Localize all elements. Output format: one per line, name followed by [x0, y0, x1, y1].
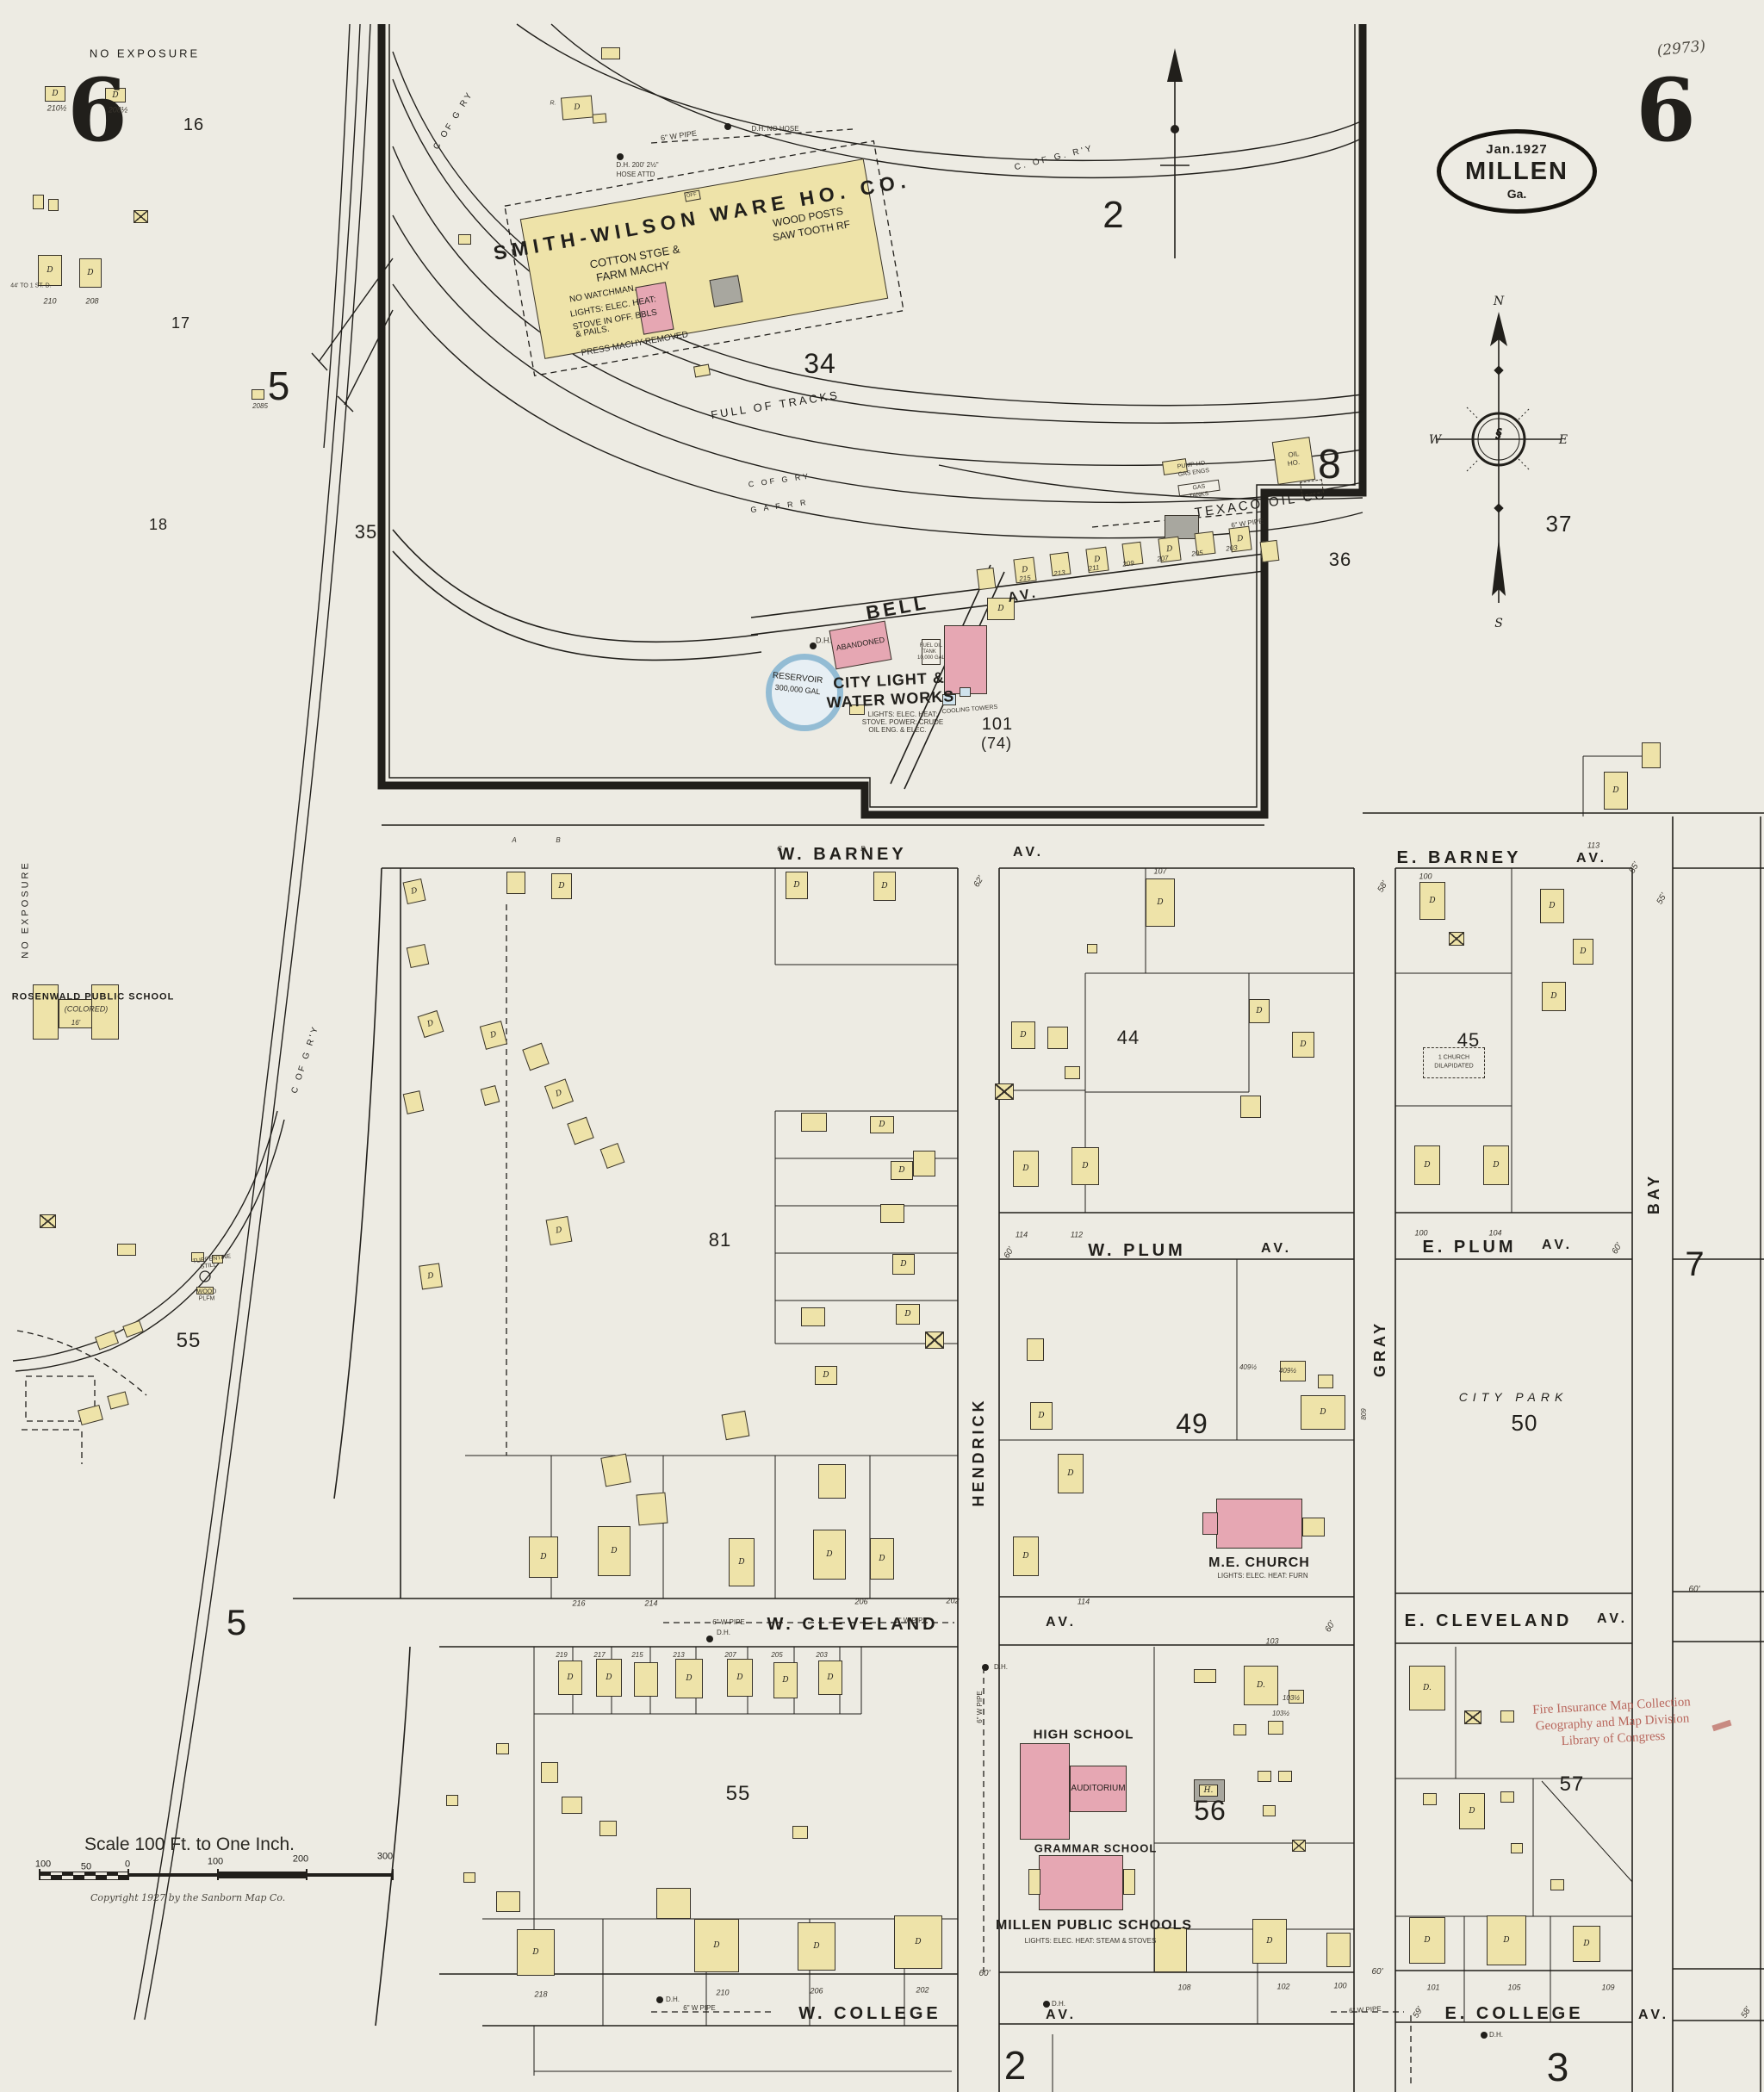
date-stamp: Jan.1927 MILLEN Ga. — [1437, 129, 1597, 214]
building-footprint: D — [1459, 1793, 1485, 1829]
building-footprint — [599, 1821, 617, 1836]
building-use-label: D — [686, 1674, 692, 1683]
building-use-label: D — [1266, 1937, 1272, 1946]
building-footprint — [1258, 1771, 1271, 1782]
map-label: 100 — [1333, 1983, 1346, 1990]
building-footprint — [1123, 1869, 1135, 1895]
map-label: 10,000 GAL — [917, 655, 945, 661]
building-footprint: D — [517, 1929, 555, 1976]
building-footprint: D — [873, 872, 896, 901]
building-footprint — [1216, 1499, 1302, 1549]
map-label: 210½ — [47, 105, 67, 113]
building-footprint: D — [1414, 1145, 1440, 1185]
building-footprint: D — [727, 1659, 753, 1697]
building-footprint: D — [596, 1659, 622, 1697]
map-label: 45 — [1457, 1031, 1480, 1050]
map-label: D.H. 200' 2½" — [616, 162, 658, 169]
building-footprint — [134, 210, 148, 223]
map-label: 6" W PIPE — [895, 1617, 928, 1624]
building-footprint: D — [1252, 1919, 1287, 1964]
scale-segment — [127, 1873, 217, 1877]
building-footprint — [880, 1204, 904, 1223]
map-label: HOSE ATTD — [617, 171, 655, 178]
map-label: 101 — [982, 716, 1013, 733]
building-footprint — [1233, 1724, 1246, 1735]
building-footprint — [1500, 1791, 1514, 1803]
map-label: AV. — [1013, 846, 1044, 860]
building-footprint — [1028, 1869, 1040, 1895]
map-label: 16 — [183, 116, 204, 133]
building-use-label: D — [1550, 992, 1556, 1001]
building-footprint — [1263, 1805, 1276, 1816]
map-label: 105 — [1507, 1984, 1520, 1992]
scale-segment — [306, 1873, 394, 1877]
map-label: 6" W PIPE — [977, 1691, 984, 1723]
map-label: 209 — [1122, 560, 1134, 568]
building-footprint: D — [892, 1254, 915, 1275]
map-label: E. COLLEGE — [1444, 2005, 1583, 2022]
map-label: 207 — [724, 1652, 736, 1659]
building-footprint: D — [1483, 1145, 1509, 1185]
building-use-label: H. — [1204, 1786, 1214, 1795]
building-footprint — [1027, 1338, 1044, 1361]
map-label: STOVE. POWER: CRUDE — [862, 719, 944, 726]
building-use-label: D — [426, 1019, 435, 1029]
building-use-label: D — [813, 1942, 819, 1951]
building-footprint: D — [1013, 1151, 1039, 1187]
compass-north-label: N — [1493, 295, 1505, 308]
building-footprint: D — [786, 872, 808, 899]
building-footprint: D — [891, 1161, 913, 1180]
map-label: R. — [550, 101, 556, 107]
building-use-label: D — [1022, 1552, 1028, 1561]
map-label: 18 — [149, 517, 168, 532]
building-footprint — [944, 625, 987, 694]
stamp-state: Ga. — [1507, 187, 1527, 201]
map-label: 218 — [534, 1991, 547, 1999]
building-footprint — [1642, 742, 1661, 768]
building-footprint — [496, 1743, 509, 1754]
building-footprint — [1423, 1793, 1437, 1805]
map-label: WOOD — [197, 1289, 217, 1295]
building-footprint: D — [1030, 1402, 1053, 1430]
building-footprint: D — [546, 1216, 573, 1245]
building-footprint: D — [1540, 889, 1564, 923]
map-label: 60' — [1371, 1968, 1382, 1977]
building-footprint — [40, 1214, 56, 1228]
scale-tick — [39, 1869, 40, 1880]
map-label: HIGH SCHOOL — [1034, 1729, 1134, 1741]
building-footprint: D — [1071, 1147, 1099, 1185]
building-use-label: D — [558, 882, 564, 891]
building-footprint: D — [1419, 882, 1445, 920]
map-label: TANK — [922, 649, 936, 655]
map-label: 217 — [593, 1652, 605, 1659]
building-footprint: D — [551, 873, 572, 899]
building-use-label: D — [879, 1120, 885, 1129]
map-label: 2085 — [252, 403, 268, 410]
building-footprint — [1292, 1840, 1306, 1852]
building-footprint — [801, 1307, 825, 1326]
building-footprint: D — [813, 1530, 846, 1580]
building-use-label: D — [1612, 786, 1618, 795]
building-footprint: D. — [1244, 1666, 1278, 1705]
building-footprint: D — [1573, 1926, 1600, 1962]
map-label: ROSENWALD PUBLIC SCHOOL — [12, 993, 175, 1003]
building-use-label: D — [793, 881, 799, 890]
building-footprint — [913, 1151, 935, 1176]
map-label: GRAMMAR SCHOOL — [1034, 1843, 1158, 1854]
map-label: A — [512, 837, 516, 844]
map-label: 114 — [1078, 1598, 1090, 1606]
map-label: M.E. CHURCH — [1208, 1556, 1310, 1570]
map-label: 102 — [1276, 1983, 1289, 1991]
building-use-label: D — [900, 1260, 906, 1269]
building-use-label: D — [823, 1371, 829, 1380]
building-use-label: D — [1082, 1162, 1088, 1170]
map-label: 210 — [43, 298, 56, 306]
map-label: W. BARNEY — [778, 846, 906, 863]
copyright-line: Copyright 1927 by the Sanborn Map Co. — [90, 1892, 285, 1903]
building-footprint — [792, 1826, 808, 1839]
map-label: 44 — [1117, 1028, 1140, 1047]
building-footprint: D. — [1409, 1666, 1445, 1710]
map-label: 103½ — [1272, 1710, 1289, 1717]
map-label: E. PLUM — [1422, 1238, 1516, 1256]
building-use-label: D — [47, 266, 53, 275]
building-footprint — [801, 1113, 827, 1132]
building-use-label: D — [1237, 535, 1244, 544]
building-footprint: D — [870, 1116, 894, 1133]
map-label: 3 — [1547, 2047, 1570, 2087]
building-use-label: D — [52, 90, 58, 98]
building-use-label: D — [713, 1941, 719, 1950]
map-label: LIGHTS: ELEC. HEAT: FURN — [1217, 1573, 1307, 1580]
map-label: AV. — [1576, 852, 1607, 866]
map-label: 200 — [293, 1855, 308, 1865]
building-use-label: D — [611, 1547, 617, 1555]
building-footprint — [1039, 1855, 1123, 1910]
building-use-label: D — [427, 1272, 435, 1282]
map-label: 5 — [227, 1605, 247, 1641]
building-footprint: D — [694, 1919, 739, 1972]
scale-bar — [39, 1869, 394, 1881]
compass-south-label: S — [1494, 617, 1503, 629]
map-label: D.H. — [717, 1630, 730, 1636]
building-footprint — [634, 1662, 658, 1697]
map-label: D — [860, 846, 866, 853]
building-footprint — [1260, 540, 1280, 562]
map-label: 2 — [1004, 2045, 1028, 2085]
map-label: 55 — [177, 1331, 202, 1351]
building-footprint — [600, 1454, 630, 1487]
building-footprint: D — [1146, 878, 1175, 927]
building-footprint — [33, 195, 44, 209]
building-use-label: D — [1300, 1040, 1306, 1049]
building-use-label: D. — [1257, 1681, 1265, 1690]
building-footprint — [1550, 1879, 1564, 1890]
building-use-label: D — [1469, 1807, 1475, 1816]
building-footprint — [1449, 932, 1464, 946]
map-label: 100 — [35, 1860, 51, 1870]
map-label: 100 — [208, 1858, 223, 1867]
building-footprint — [636, 1493, 668, 1526]
building-use-label: D — [87, 269, 93, 277]
map-label: 100 — [1419, 873, 1432, 881]
map-label: AV. — [1597, 1612, 1628, 1626]
map-label: AUDITORIUM — [1071, 1785, 1125, 1793]
building-footprint — [117, 1244, 136, 1256]
map-label: D.H. NO HOSE — [751, 126, 798, 133]
scale-segment — [39, 1875, 129, 1880]
building-footprint: D — [773, 1662, 798, 1698]
building-use-label: D — [1424, 1161, 1430, 1170]
building-footprint — [818, 1464, 846, 1499]
map-label: 81 — [709, 1231, 731, 1250]
map-label: LIGHTS: ELEC. HEAT: — [868, 711, 938, 718]
building-use-label: D — [556, 1226, 563, 1235]
building-footprint: D — [1292, 1032, 1314, 1058]
map-label: D.H. — [1489, 2032, 1503, 2039]
map-label: 100 — [1414, 1230, 1427, 1238]
map-label: AV. — [1261, 1242, 1292, 1256]
map-label: 203 — [816, 1652, 827, 1659]
map-label: (74) — [981, 736, 1012, 751]
map-label: 409½ — [1279, 1368, 1296, 1375]
building-footprint — [1087, 944, 1097, 953]
building-footprint — [541, 1762, 558, 1783]
map-label: 203 — [1226, 544, 1238, 553]
map-label: 215 — [1019, 574, 1031, 583]
building-use-label: D — [1038, 1412, 1044, 1420]
building-footprint — [1154, 1927, 1187, 1972]
scale-tick — [127, 1869, 129, 1880]
map-label: 211 — [1088, 564, 1100, 572]
building-footprint: D — [1249, 999, 1270, 1023]
map-label: 107 — [1153, 868, 1166, 876]
building-footprint — [1302, 1518, 1325, 1536]
building-use-label: D — [1067, 1469, 1073, 1478]
building-footprint — [48, 199, 59, 211]
building-footprint: D — [558, 1661, 582, 1695]
building-use-label: D — [881, 882, 887, 891]
building-footprint: D — [419, 1263, 443, 1289]
building-footprint — [458, 234, 471, 245]
map-label: NO EXPOSURE — [22, 860, 31, 959]
building-use-label: D — [1549, 902, 1555, 910]
map-label: 7 — [1685, 1247, 1705, 1282]
map-label: D.H. — [816, 637, 831, 645]
map-label: 207 — [1157, 555, 1169, 563]
map-label: CITY PARK — [1459, 1391, 1568, 1403]
building-use-label: D — [489, 1030, 498, 1040]
map-label: AV. — [1638, 2008, 1669, 2022]
map-label: 49 — [1176, 1410, 1208, 1437]
building-use-label: D — [1157, 898, 1163, 907]
building-footprint: D — [1011, 1021, 1035, 1049]
map-label: 112 — [1071, 1232, 1083, 1239]
building-footprint: D — [1573, 939, 1593, 965]
building-footprint: D — [729, 1538, 755, 1586]
building-use-label: D — [1580, 947, 1586, 956]
stamp-city: MILLEN — [1465, 158, 1568, 186]
building-footprint — [1326, 1933, 1351, 1967]
building-footprint — [1065, 1066, 1080, 1079]
building-footprint: D — [45, 86, 65, 102]
compass-monogram: § — [1496, 427, 1502, 441]
map-label: D.H. — [666, 1996, 680, 2003]
map-label: DILAPIDATED — [1434, 1064, 1473, 1070]
building-use-label: D — [1320, 1408, 1326, 1417]
map-label: 44' TO 1 ST. D. — [10, 283, 51, 289]
map-label: AV. — [1046, 2008, 1077, 2022]
building-use-label: D — [736, 1673, 742, 1682]
building-footprint — [995, 1083, 1014, 1100]
building-footprint — [407, 944, 430, 968]
building-footprint: D — [1487, 1915, 1526, 1965]
building-footprint: D — [815, 1366, 837, 1385]
building-footprint: D — [818, 1661, 842, 1695]
building-footprint — [1278, 1771, 1292, 1782]
map-label: E. CLEVELAND — [1405, 1612, 1573, 1630]
building-footprint — [1194, 1669, 1216, 1683]
building-footprint — [1268, 1721, 1283, 1735]
building-use-label: D — [1022, 1164, 1028, 1173]
map-label: 210 — [716, 1990, 729, 1997]
building-footprint: D — [896, 1304, 920, 1325]
building-footprint — [463, 1872, 475, 1883]
map-label: 113 — [1587, 842, 1599, 850]
map-label: 60' — [1688, 1586, 1699, 1594]
building-footprint — [1020, 1743, 1070, 1840]
building-use-label: D — [410, 886, 418, 896]
map-label: B — [556, 837, 560, 844]
map-label: 6 — [1636, 67, 1696, 153]
building-footprint: D — [870, 1538, 894, 1580]
scale-tick — [217, 1869, 219, 1880]
map-label: D.H. — [994, 1664, 1008, 1671]
building-footprint: D — [38, 255, 62, 286]
building-footprint — [1511, 1843, 1523, 1853]
map-label: NO EXPOSURE — [90, 48, 200, 59]
stamp-date: Jan.1927 — [1486, 142, 1547, 157]
building-footprint: D — [1409, 1917, 1445, 1964]
map-label: 0 — [125, 1860, 130, 1870]
building-use-label: D — [1503, 1936, 1509, 1945]
building-use-label: D — [1583, 1940, 1589, 1948]
building-footprint — [722, 1411, 750, 1440]
map-label: 36 — [1329, 550, 1351, 569]
building-footprint — [977, 568, 997, 590]
compass-east-label: E — [1558, 433, 1568, 447]
map-label: AV. — [1542, 1238, 1573, 1252]
map-label: OIL ENG. & ELEC. — [868, 727, 926, 734]
map-label: AV. — [1046, 1616, 1077, 1630]
building-use-label: D — [826, 1550, 832, 1559]
map-label: 219 — [556, 1652, 567, 1659]
building-footprint — [252, 389, 264, 400]
map-label: 409½ — [1239, 1364, 1257, 1371]
map-label: C — [777, 846, 782, 853]
building-use-label: D — [1424, 1936, 1430, 1945]
building-use-label: D — [540, 1553, 546, 1561]
building-use-label: D — [555, 1089, 563, 1099]
building-footprint: D — [675, 1659, 703, 1698]
map-label: 103 — [1265, 1638, 1278, 1646]
map-label: 8 — [1318, 444, 1342, 486]
map-label: 208½ — [109, 107, 128, 115]
map-label: PLFM — [199, 1296, 215, 1302]
map-label: 208 — [85, 298, 98, 306]
building-footprint: D — [1301, 1395, 1345, 1430]
building-use-label: D — [827, 1673, 833, 1682]
street-lines — [293, 530, 1764, 2092]
map-label: E. BARNEY — [1397, 849, 1522, 866]
map-label: 55 — [726, 1784, 751, 1804]
building-use-label: D — [567, 1673, 573, 1682]
map-label: LIGHTS: ELEC. HEAT: STEAM & STOVES — [1025, 1938, 1157, 1945]
map-label: 56 — [1194, 1797, 1227, 1824]
compass-west-label: W — [1430, 433, 1443, 447]
building-footprint: D — [798, 1922, 835, 1971]
building-footprint: D — [894, 1915, 942, 1969]
map-label: 16' — [71, 1020, 80, 1027]
building-footprint — [709, 275, 742, 307]
building-use-label: D — [898, 1166, 904, 1175]
building-footprint — [960, 687, 971, 697]
building-footprint: D — [529, 1536, 558, 1578]
building-footprint — [562, 1797, 582, 1814]
building-use-label: D — [606, 1673, 612, 1682]
map-label: 34 — [804, 350, 836, 377]
map-label: 35 — [355, 523, 377, 542]
building-use-label: D — [1020, 1031, 1026, 1040]
building-footprint — [656, 1888, 691, 1919]
building-footprint: D — [1058, 1454, 1084, 1493]
building-footprint — [1318, 1375, 1333, 1388]
map-label: D.H. — [1052, 2001, 1065, 2008]
building-use-label: D — [997, 605, 1003, 613]
building-footprint — [446, 1795, 458, 1806]
map-label: W. COLLEGE — [798, 2005, 941, 2022]
scale-tick — [306, 1869, 307, 1880]
map-label: (COLORED) — [65, 1006, 109, 1014]
building-footprint — [496, 1891, 520, 1912]
building-footprint — [1464, 1710, 1481, 1724]
map-label: 202 — [946, 1598, 959, 1605]
map-label: 213 — [673, 1652, 684, 1659]
scale-segment — [217, 1872, 306, 1878]
map-label: 216 — [572, 1600, 585, 1608]
map-label: 215 — [631, 1652, 643, 1659]
scale-title: Scale 100 Ft. to One Inch. — [52, 1834, 327, 1855]
building-use-label: D — [1166, 545, 1173, 555]
map-label: 114 — [1016, 1232, 1028, 1239]
building-footprint — [1202, 1512, 1218, 1535]
map-label: 60' — [978, 1970, 990, 1978]
map-label: 103½ — [1283, 1695, 1300, 1702]
map-label: BAY — [1646, 1173, 1662, 1214]
map-label: 202 — [916, 1987, 929, 1995]
scale-tick — [392, 1869, 394, 1880]
map-label: W. PLUM — [1088, 1242, 1186, 1259]
building-footprint — [601, 47, 620, 59]
map-label: 2 — [1102, 196, 1124, 234]
map-label: 206 — [854, 1598, 867, 1606]
building-footprint: D — [1604, 772, 1628, 810]
building-footprint: D — [1542, 982, 1566, 1011]
building-footprint: D — [561, 95, 593, 120]
